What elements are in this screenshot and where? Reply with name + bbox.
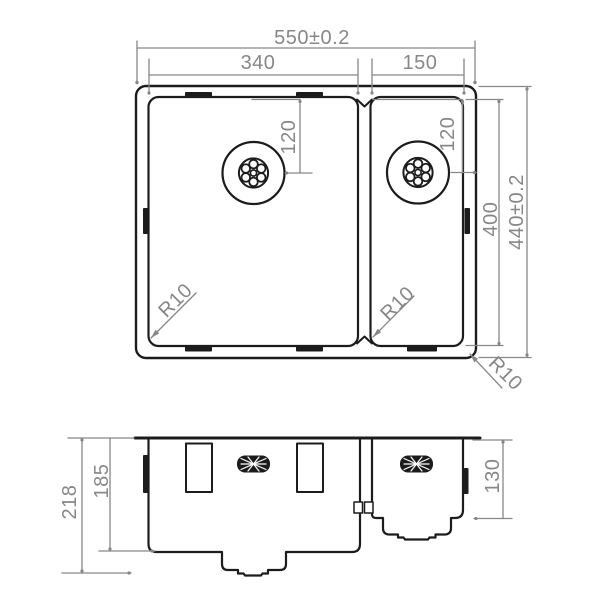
dim-left-bowl-height-label: 185 <box>91 464 113 499</box>
clip-tab <box>143 455 148 493</box>
dim-total-height-label: 218 <box>59 485 81 520</box>
dim-right-drain-offset-label: 120 <box>437 117 459 152</box>
top-view: 550±0.2 340 150 120 <box>135 27 531 395</box>
right-bowl-profile <box>372 438 463 540</box>
divider-clamp <box>354 502 363 513</box>
clip-tab <box>296 92 323 98</box>
welded-clip-left <box>237 456 270 473</box>
clip-tab <box>296 346 323 352</box>
radius-left-bowl-label: R10 <box>154 279 197 322</box>
dim-right-bowl-height: 130 <box>473 440 512 520</box>
dim-inner-depth: 400 <box>466 100 503 346</box>
mounting-bracket <box>297 444 323 493</box>
dim-left-drain-offset-label: 120 <box>278 120 300 155</box>
sink-rim-outline <box>136 86 476 358</box>
dim-right-bowl-width: 150 <box>370 52 465 95</box>
dim-right-bowl-width-label: 150 <box>403 52 438 74</box>
dim-overall-width-label: 550±0.2 <box>274 27 350 49</box>
mounting-bracket <box>186 444 212 493</box>
clip-tab <box>464 468 469 494</box>
dim-inner-depth-label: 400 <box>480 202 502 237</box>
front-view: 218 185 130 <box>59 438 512 576</box>
clip-tab <box>143 208 149 234</box>
clip-tab <box>185 346 212 352</box>
clip-tab <box>407 346 437 352</box>
radius-right-bowl: R10 <box>373 282 419 337</box>
divider-clamp <box>365 502 374 513</box>
dim-total-height: 218 <box>59 438 134 575</box>
clip-tab <box>465 208 471 234</box>
dim-left-bowl-width-label: 340 <box>241 52 276 74</box>
drawing-svg: 550±0.2 340 150 120 <box>0 0 600 600</box>
left-drain <box>223 142 285 204</box>
radius-left-bowl: R10 <box>151 279 197 338</box>
dim-overall-depth-label: 440±0.2 <box>506 174 528 250</box>
welded-clip-right <box>400 456 433 473</box>
radius-outer-rim-label: R10 <box>484 352 527 395</box>
dim-left-bowl-width: 340 <box>147 52 359 95</box>
sink-dimension-drawing: 550±0.2 340 150 120 <box>0 0 600 600</box>
radius-right-bowl-label: R10 <box>376 282 419 325</box>
clip-tab <box>185 92 212 98</box>
dim-right-bowl-height-label: 130 <box>482 459 504 494</box>
radius-outer-rim: R10 <box>470 352 527 395</box>
